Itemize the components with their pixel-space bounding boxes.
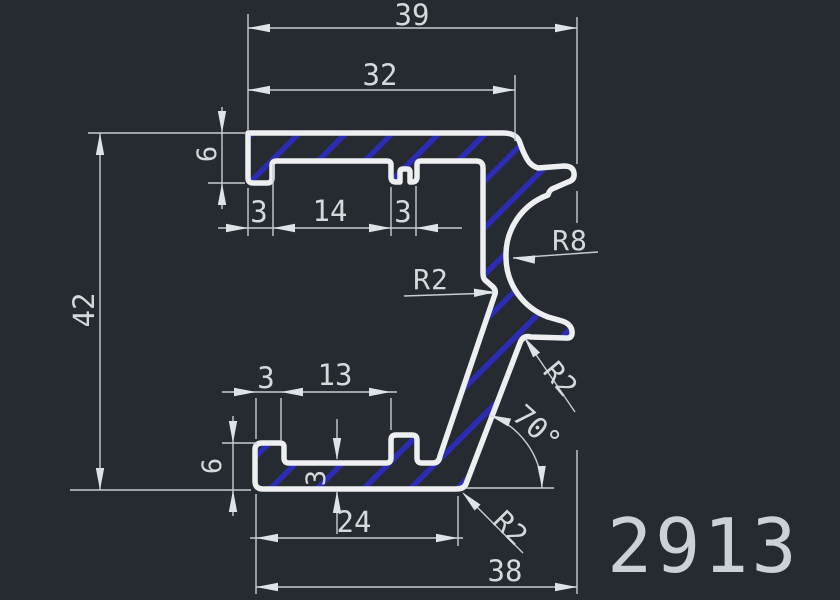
dim-overall-width-top: 39 <box>395 0 430 32</box>
dim-top-rib-width: 3 <box>394 195 411 229</box>
dim-floor-thickness: 3 <box>301 470 332 486</box>
dim-overall-width-bottom: 38 <box>488 554 523 588</box>
dim-top-lip-width: 3 <box>250 195 267 229</box>
dim-bottom-flange-height: 6 <box>197 458 228 474</box>
dim-bottom-lip-width: 3 <box>257 361 274 395</box>
dim-bottom-channel-width: 13 <box>318 358 353 392</box>
label-wall-fillet-radius: R2 <box>413 263 449 296</box>
dim-bottom-channel-span: 24 <box>337 505 372 539</box>
cad-drawing-viewport: 39 32 42 6 3 14 3 R2 R8 R2 70° 3 13 6 3 … <box>0 0 840 600</box>
dim-top-flange-width: 32 <box>363 58 398 92</box>
dim-top-channel-width: 14 <box>313 194 348 228</box>
part-number: 2913 <box>607 502 800 590</box>
dim-top-flange-thickness: 6 <box>192 146 223 162</box>
dim-overall-height: 42 <box>67 293 101 328</box>
cad-drawing-canvas: 39 32 42 6 3 14 3 R2 R8 R2 70° 3 13 6 3 … <box>0 0 840 600</box>
label-hook-radius: R8 <box>552 224 588 257</box>
